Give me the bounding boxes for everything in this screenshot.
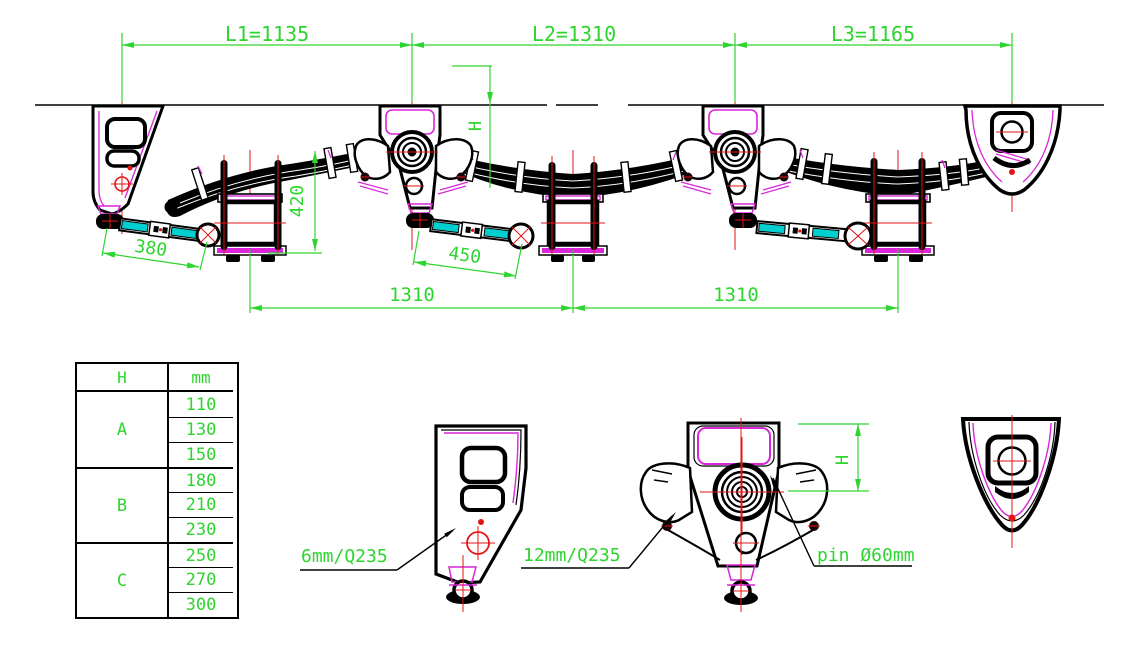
dim-l2: L2=1310 [532,22,616,46]
table-value: 110 [167,392,233,417]
table-value: 150 [167,442,233,467]
table-value: 270 [167,567,233,592]
dim-l3: L3=1165 [831,22,915,46]
callout-front-hanger-plate: 6mm/Q235 [301,546,388,567]
table-value: 250 [167,542,233,567]
cad-drawing-page: L1=1135 L2=1310 L3=1165 H 420 380 450 [0,0,1133,645]
table-header-h: H [77,364,167,392]
detail-rear-hanger [963,415,1059,548]
table-group-b: B [77,467,167,542]
torque-arm-3 [756,220,871,249]
table-value: 180 [167,467,233,492]
leaf-spring-pack-2 [448,151,702,198]
front-hanger [93,106,163,229]
leaf-spring-pack-3 [772,149,990,196]
callout-equalizer-plate: 12mm/Q235 [523,545,621,566]
dim-l1: L1=1135 [225,22,309,46]
dim-torque-arm-1: 380 [133,236,168,261]
dim-spring-height: 420 [287,185,308,218]
torque-arm-1 [119,217,219,246]
detail-front-hanger [436,426,526,612]
table-value: 230 [167,517,233,542]
equalizer-hanger-3 [678,106,796,228]
rear-hanger [965,106,1060,194]
table-group-c: C [77,542,167,617]
table-value: 210 [167,492,233,517]
dim-axle-spacing-2: 1310 [713,284,759,306]
dim-torque-arm-2: 450 [447,243,482,268]
dim-ride-height: H [466,121,486,131]
equalizer-hanger-2 [355,106,473,228]
callout-equalizer-pin: pin Ø60mm [817,545,915,566]
dim-axle-spacing-1: 1310 [389,284,435,306]
table-value: 300 [167,592,233,617]
detail-equalizer-hanger: H [641,418,869,612]
height-spec-table: H mm A 110 130 150 B 180 210 230 C 250 2… [75,362,239,619]
table-group-a: A [77,392,167,467]
table-value: 130 [167,417,233,442]
table-header-mm: mm [167,364,233,392]
torque-arm-2 [430,218,533,248]
dim-detail-ride-height: H [833,455,853,465]
